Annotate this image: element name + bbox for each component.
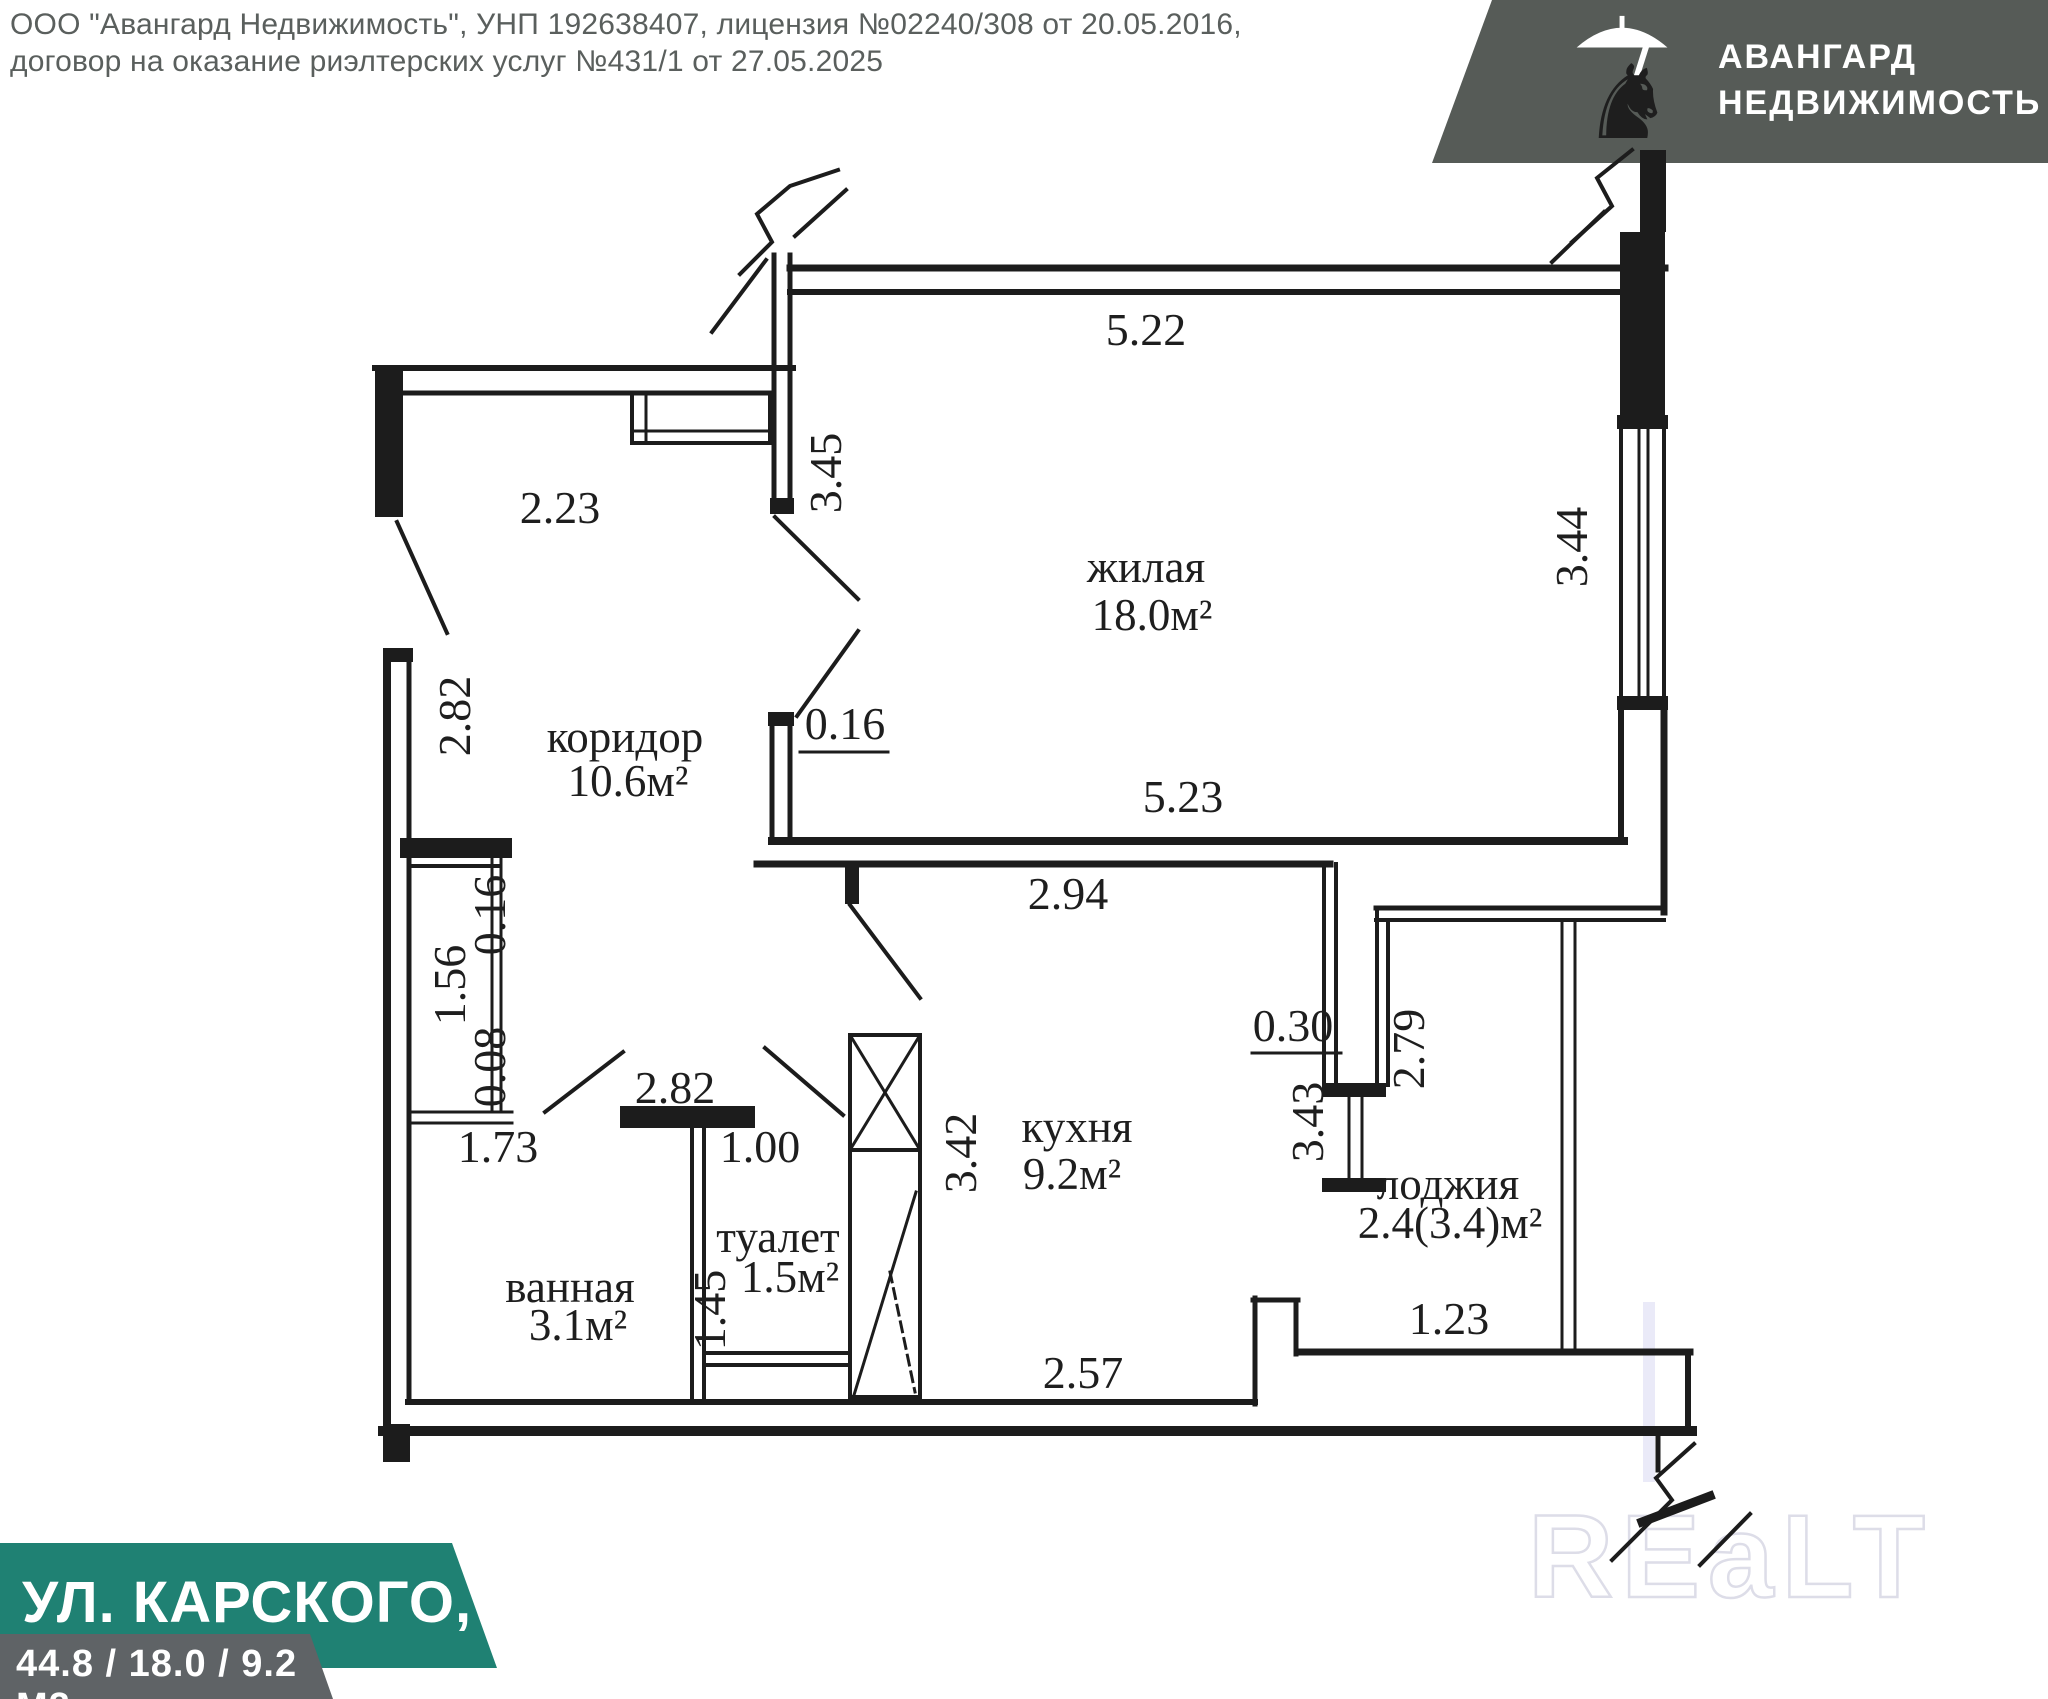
dim-living-bottom: 5.23	[1143, 771, 1224, 822]
dim-kitchen-right: 3.43	[1282, 1082, 1333, 1163]
dim-kitchen-bottom: 2.57	[1043, 1347, 1124, 1398]
watermark-artifact	[1643, 1302, 1655, 1482]
floor-plan: REaLT	[0, 0, 2048, 1699]
room-kitchen-name: кухня	[1021, 1102, 1132, 1152]
areas-text: 44.8 / 18.0 / 9.2 М2	[0, 1634, 333, 1699]
dim-living-top: 5.22	[1106, 304, 1187, 355]
watermark: REaLT	[1528, 1491, 1933, 1623]
room-bath-area: 3.1м²	[529, 1300, 627, 1350]
dim-corridor-bottom: 2.82	[635, 1062, 716, 1113]
dim-hall-top: 2.23	[520, 482, 601, 533]
dim-kitchen-top: 2.94	[1028, 868, 1109, 919]
dim-loggia-height: 2.79	[1383, 1009, 1434, 1090]
page: ООО "Авангард Недвижимость", УНП 1926384…	[0, 0, 2048, 1699]
dim-toilet-height: 1.45	[684, 1270, 735, 1351]
room-corridor-area: 10.6м²	[568, 756, 689, 806]
room-kitchen-area: 9.2м²	[1023, 1149, 1121, 1199]
dim-wall-step: 0.30	[1253, 1000, 1334, 1051]
dim-kitchen-left: 3.42	[935, 1113, 986, 1194]
dim-living-left: 3.45	[800, 433, 851, 514]
dim-niche-height: 1.56	[424, 945, 475, 1026]
room-corridor-name: коридор	[547, 712, 704, 762]
dim-shelf-thickness: 0.08	[464, 1027, 515, 1108]
dim-living-right: 3.44	[1546, 507, 1597, 588]
areas-banner: 44.8 / 18.0 / 9.2 М2	[0, 1634, 333, 1699]
dim-partition-thickness: 0.16	[464, 875, 515, 956]
dim-bath-width: 1.73	[458, 1121, 539, 1172]
dim-toilet-width: 1.00	[720, 1121, 801, 1172]
dim-loggia-width: 1.23	[1409, 1293, 1490, 1344]
room-living-area: 18.0м²	[1092, 590, 1213, 640]
dim-living-door-wall: 0.16	[805, 698, 886, 749]
room-living-name: жилая	[1086, 542, 1205, 592]
room-toilet-area: 1.5м²	[741, 1252, 839, 1302]
room-loggia-area: 2.4(3.4)м²	[1358, 1198, 1542, 1248]
dim-corridor-left: 2.82	[429, 676, 480, 757]
